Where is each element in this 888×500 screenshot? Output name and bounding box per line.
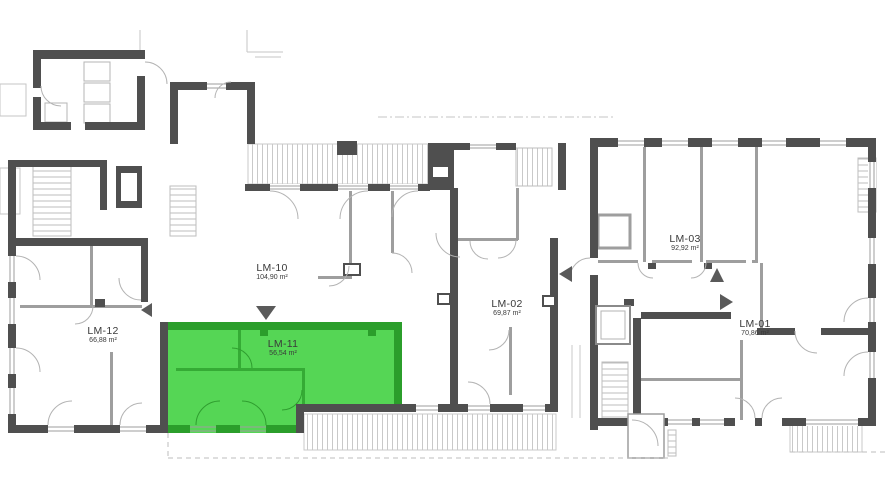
shaft-middle <box>433 167 448 177</box>
entrance-arrow-right-lm-01 <box>720 294 733 310</box>
stair-left-exterior <box>33 166 71 236</box>
entry-vestibule <box>628 414 664 458</box>
wardrobe <box>84 104 110 123</box>
unit-label-lm-12[interactable]: LM-12 66,88 m² <box>87 325 118 345</box>
unit-area: 70,86 m² <box>739 330 770 338</box>
duct-box <box>543 296 555 306</box>
lower-terrace <box>304 414 556 450</box>
duct-box <box>438 294 450 304</box>
unit-label-lm-10[interactable]: LM-10 104,90 m² <box>256 262 288 282</box>
entrance-arrow-down-lm-11 <box>256 306 276 320</box>
walls <box>8 50 876 433</box>
elevator-left <box>121 173 137 201</box>
unit-name: LM-11 <box>268 338 298 350</box>
right-terrace <box>790 424 862 452</box>
unit-area: 92,92 m² <box>669 245 700 253</box>
duct-box <box>344 264 360 275</box>
unit-area: 104,90 m² <box>256 274 288 282</box>
unit-name: LM-12 <box>87 325 118 337</box>
wardrobe <box>84 83 110 102</box>
unit-label-lm-03[interactable]: LM-03 92,92 m² <box>669 233 700 253</box>
unit-name: LM-10 <box>256 262 288 274</box>
wardrobe <box>84 62 110 81</box>
furniture <box>45 62 110 123</box>
stair-right-core <box>602 362 628 420</box>
floor-plan-stage: LM-12 66,88 m² LM-10 104,90 m² LM-11 56,… <box>0 0 888 500</box>
unit-name: LM-03 <box>669 233 700 245</box>
unit-label-lm-11[interactable]: LM-11 56,54 m² <box>268 338 298 358</box>
stair-vestibule <box>668 430 676 456</box>
windows <box>8 82 876 433</box>
floor-plan-drawing <box>0 0 888 500</box>
unit-area: 66,88 m² <box>87 337 118 345</box>
unit-label-lm-01[interactable]: LM-01 70,86 m² <box>739 318 770 338</box>
stair-middle <box>516 148 552 186</box>
unit-area: 56,54 m² <box>268 350 298 358</box>
unit-area: 69,87 m² <box>491 310 522 318</box>
entrance-arrow-left-lm-12 <box>141 303 152 317</box>
unit-name: LM-01 <box>739 318 770 330</box>
entrance-arrow-left-lm-02 <box>559 266 572 282</box>
entrance-arrow-up-lm-03 <box>710 268 724 282</box>
unit-label-lm-02[interactable]: LM-02 69,87 m² <box>491 298 522 318</box>
stair-left-core <box>170 186 196 236</box>
unit-name: LM-02 <box>491 298 522 310</box>
